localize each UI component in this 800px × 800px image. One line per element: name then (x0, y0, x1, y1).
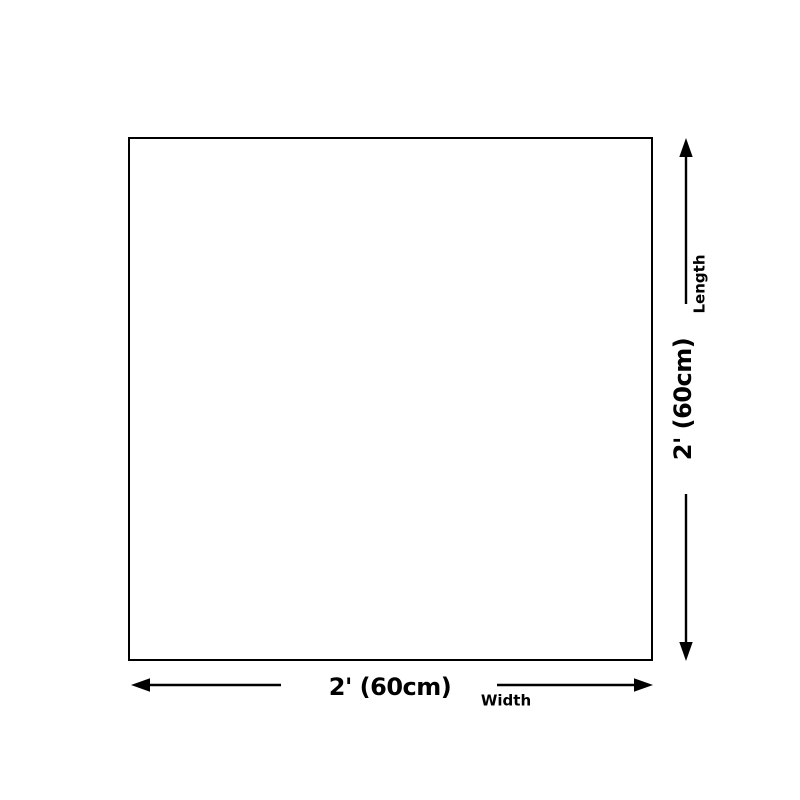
width-label: Width (481, 694, 531, 709)
size-diagram: 2' (60cm) Width 2' (60cm) Length (0, 0, 800, 800)
length-arrow-down-icon (679, 494, 692, 661)
width-arrow-left-icon (131, 678, 281, 691)
length-value: 2' (60cm) (671, 338, 695, 460)
width-value: 2' (60cm) (329, 675, 451, 699)
length-label: Length (693, 255, 708, 314)
product-outline-square (128, 137, 653, 661)
width-arrow-right-icon (497, 678, 653, 691)
